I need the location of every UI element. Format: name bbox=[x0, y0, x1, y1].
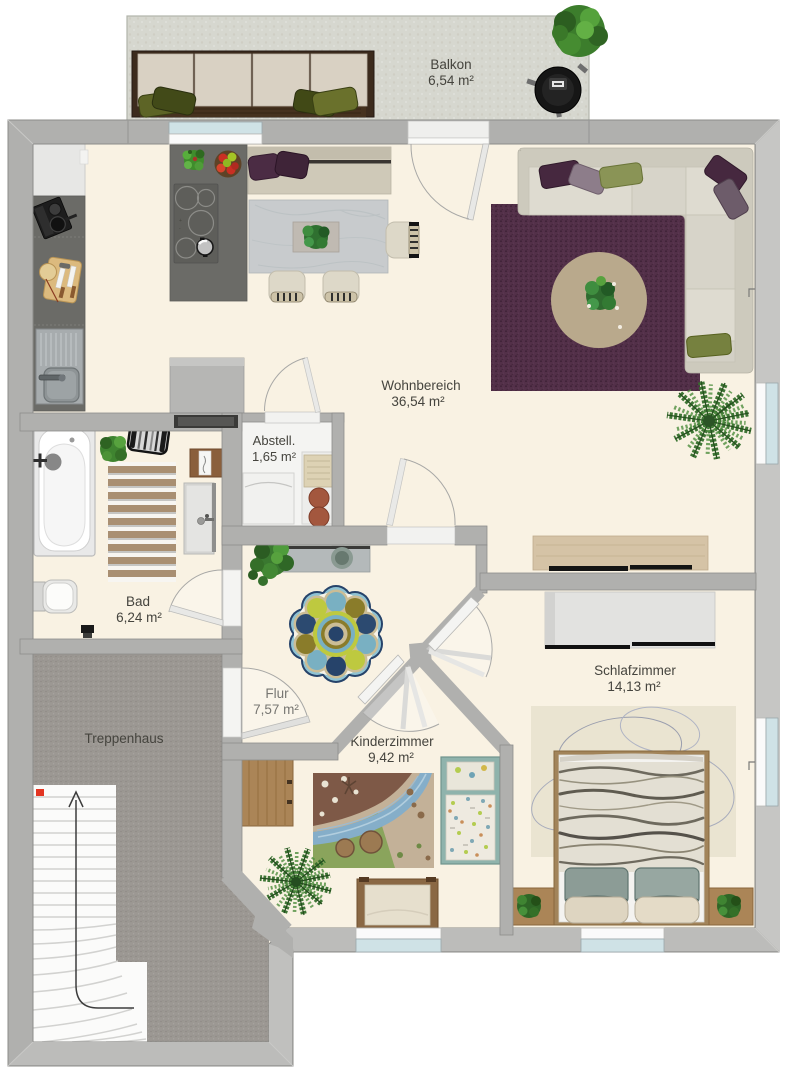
svg-text:Abstell.: Abstell. bbox=[253, 433, 296, 448]
svg-text:6,54 m²: 6,54 m² bbox=[428, 73, 474, 88]
svg-text:Wohnbereich: Wohnbereich bbox=[381, 378, 460, 393]
svg-text:6,24 m²: 6,24 m² bbox=[116, 610, 162, 625]
svg-text:Bad: Bad bbox=[126, 594, 150, 609]
svg-text:Treppenhaus: Treppenhaus bbox=[84, 731, 163, 746]
svg-text:14,13 m²: 14,13 m² bbox=[607, 679, 661, 694]
svg-text:Kinderzimmer: Kinderzimmer bbox=[350, 734, 434, 749]
svg-text:9,42 m²: 9,42 m² bbox=[368, 750, 414, 765]
svg-text:+: + bbox=[179, 218, 182, 224]
svg-text:Balkon: Balkon bbox=[430, 57, 471, 72]
svg-text:1,65 m²: 1,65 m² bbox=[252, 449, 297, 464]
svg-text:Schlafzimmer: Schlafzimmer bbox=[594, 663, 676, 678]
svg-text:36,54 m²: 36,54 m² bbox=[391, 394, 445, 409]
